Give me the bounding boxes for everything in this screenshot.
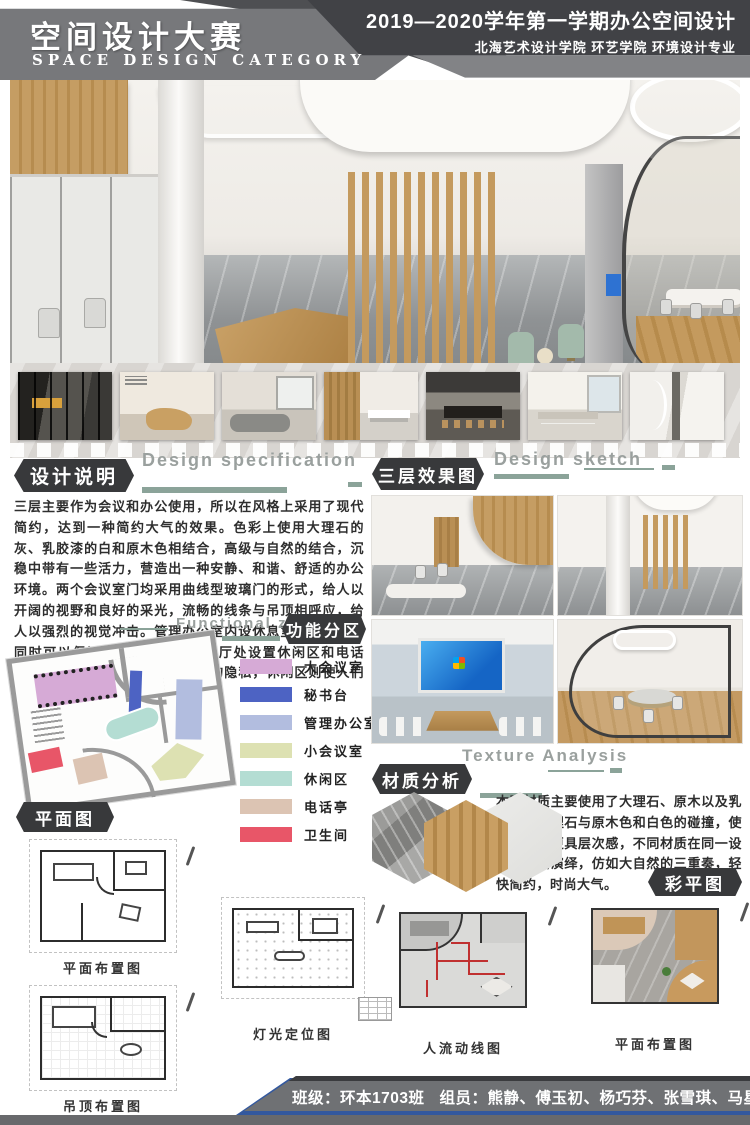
- render-glass-meeting-room: [558, 620, 742, 743]
- legend-swatch: [240, 799, 292, 814]
- floor-plan-drawing: [40, 850, 166, 942]
- legend-label: 大会议室: [304, 657, 364, 676]
- conference-table: [410, 921, 450, 936]
- legend-label: 休闲区: [304, 769, 349, 788]
- lounge-table: [480, 977, 512, 997]
- conference-table: [53, 863, 94, 881]
- legend-item: 秘书台: [240, 686, 370, 702]
- poster-header: 空间设计大赛 SPACE DESIGN CATEGORY 2019—2020学年…: [0, 0, 750, 80]
- wood-floor: [636, 316, 740, 363]
- accent-dash: [662, 465, 675, 470]
- stairs: [30, 705, 64, 743]
- gray-wall-panel: [585, 164, 623, 363]
- north-arrow: [186, 992, 196, 1012]
- ceiling-feature: [52, 1006, 96, 1028]
- school-info: 北海艺术设计学院 环艺学院 环境设计专业: [366, 37, 736, 56]
- chair-row: [379, 717, 426, 735]
- sketch-title-en: Design sketch: [494, 449, 642, 470]
- ceiling-light: [613, 630, 676, 650]
- desk: [125, 861, 147, 875]
- thumbnail-office-4: [324, 372, 418, 440]
- north-arrow: [186, 846, 196, 866]
- wood-slat-partition: [348, 172, 498, 363]
- office-chair: [643, 709, 654, 723]
- circulation-line: [468, 942, 470, 973]
- ceiling-plan-caption: 吊顶布置图: [63, 1096, 143, 1115]
- lighting-plan-block: 灯光定位图: [218, 908, 368, 1043]
- header-course-info: 2019—2020学年第一学期办公空间设计 北海艺术设计学院 环艺学院 环境设计…: [366, 5, 736, 56]
- render-leisure-area: [372, 496, 553, 615]
- blue-accent-panel: [606, 274, 621, 296]
- legend-swatch: [240, 659, 292, 674]
- legend-item: 卫生间: [240, 826, 370, 842]
- thumbnail-office-2: [120, 372, 214, 440]
- windows-logo: [453, 657, 465, 669]
- lounge-chair: [558, 324, 584, 358]
- zone-restroom: [28, 747, 63, 773]
- wood-cabinet: [10, 80, 128, 174]
- zoning-legend: 大会议室 秘书台 管理办公室 小会议室 休闲区 电话亭 卫生间: [240, 658, 370, 854]
- wood-ceiling-volume: [473, 496, 553, 565]
- conference-table: [426, 711, 498, 731]
- color-layout-plan-caption: 平面布置图: [615, 1034, 695, 1053]
- legend-swatch: [240, 827, 292, 842]
- accent-line: [548, 770, 604, 772]
- wood-wall: [434, 517, 459, 567]
- ceiling-oval: [120, 1043, 142, 1056]
- thumbnail-office-6: [528, 372, 622, 440]
- accent-line: [584, 468, 654, 470]
- plan-wall: [110, 1030, 164, 1032]
- lighting-plan-caption: 灯光定位图: [253, 1024, 333, 1043]
- legend-swatch: [240, 687, 292, 702]
- room-zone: [480, 914, 525, 943]
- footer-credits: 班级：环本1703班 组员：熊静、傅玉初、杨巧芬、张雪琪、马星星: [292, 1086, 744, 1108]
- poster-title-en: SPACE DESIGN CATEGORY: [32, 51, 366, 69]
- office-chair: [84, 298, 106, 328]
- plan-wall: [113, 889, 164, 891]
- white-column: [158, 80, 204, 363]
- thumbnail-office-1: [18, 372, 112, 440]
- texture-title-en: Texture Analysis: [462, 746, 628, 766]
- zoning-badge: 功能分区: [282, 614, 366, 644]
- circulation-line: [451, 942, 471, 944]
- plan-wall: [81, 903, 83, 940]
- service-zone: [593, 965, 625, 1002]
- glass-partition-left: [10, 174, 160, 363]
- design-competition-poster: 空间设计大赛 SPACE DESIGN CATEGORY 2019—2020学年…: [0, 0, 750, 1125]
- legend-item: 大会议室: [240, 658, 370, 674]
- round-table: [628, 689, 676, 704]
- legend-item: 电话亭: [240, 798, 370, 814]
- white-platform: [386, 584, 466, 598]
- legend-item: 小会议室: [240, 742, 370, 758]
- office-zone: [675, 910, 717, 960]
- door-swing: [96, 877, 114, 895]
- hero-render: [10, 80, 740, 363]
- circulation-line: [426, 980, 428, 997]
- plans-badge: 平面图: [16, 802, 114, 832]
- thumbnail-office-3: [222, 372, 316, 440]
- legend-label: 小会议室: [304, 741, 364, 760]
- light-fixture-group: [312, 918, 338, 935]
- lounge-table: [119, 903, 142, 922]
- office-chair: [38, 308, 60, 338]
- door-swing: [91, 1022, 107, 1038]
- plan-wall: [110, 998, 112, 1030]
- floor-plan-caption: 平面布置图: [63, 958, 143, 977]
- ceiling-curve: [630, 80, 740, 142]
- accent-bar: [142, 487, 287, 493]
- sketch-badge: 三层效果图: [372, 458, 484, 490]
- wood-slat-partition: [643, 515, 691, 589]
- white-column: [606, 496, 630, 615]
- side-table: [537, 348, 553, 363]
- legend-label: 卫生间: [304, 825, 349, 844]
- plan-wall: [298, 939, 352, 941]
- course-title: 2019—2020学年第一学期办公空间设计: [366, 5, 736, 34]
- plant: [662, 967, 671, 976]
- plan-wall: [298, 910, 300, 939]
- legend-label: 管理办公室: [304, 713, 379, 732]
- office-chair: [722, 299, 734, 315]
- accent-bar: [222, 636, 280, 641]
- light-fixture-group: [246, 921, 279, 933]
- accent-bar: [494, 474, 569, 479]
- circulation-line: [436, 960, 488, 962]
- light-fixture-group: [274, 951, 305, 961]
- floor-plan-block: 平面布置图: [28, 850, 178, 977]
- ceiling-plan-block: 吊顶布置图: [28, 996, 178, 1115]
- legend-swatch: [240, 715, 292, 730]
- office-chair: [672, 696, 683, 710]
- legend-swatch: [240, 743, 292, 758]
- class-label: 班级：环本1703班: [292, 1086, 424, 1108]
- accent-line: [120, 628, 168, 630]
- footer-bottom-strip: [0, 1115, 750, 1125]
- texture-badge: 材质分析: [372, 764, 472, 794]
- zoning-floor-plan: [6, 630, 236, 814]
- legend-label: 秘书台: [304, 685, 349, 704]
- zone-management-office: [175, 679, 202, 739]
- legend-swatch: [240, 771, 292, 786]
- design-spec-badge: 设计说明: [14, 459, 134, 492]
- legend-label: 电话亭: [304, 797, 349, 816]
- design-spec-title-en: Design specification: [142, 450, 357, 471]
- lounge-chair: [508, 332, 534, 363]
- north-arrow: [376, 904, 386, 924]
- zone-conference-large: [34, 664, 118, 709]
- accent-dash: [610, 768, 622, 773]
- lighting-plan-drawing: [232, 908, 354, 988]
- office-chair: [613, 696, 624, 710]
- zone-conference-small: [147, 737, 209, 786]
- ceiling-panel: [632, 496, 720, 510]
- accent-dash: [348, 482, 362, 487]
- wood-conference-table: [603, 917, 645, 934]
- legend-item: 休闲区: [240, 770, 370, 786]
- circulation-plan-caption: 人流动线图: [423, 1038, 503, 1057]
- render-conference-room: [372, 620, 553, 743]
- thumbnail-office-5: [426, 372, 520, 440]
- north-arrow: [548, 906, 558, 926]
- legend-item: 管理办公室: [240, 714, 370, 730]
- north-arrow: [740, 902, 750, 922]
- render-lobby-partition: [558, 496, 742, 615]
- ceiling-plan-drawing: [40, 996, 166, 1080]
- curved-glass-meeting-room: [622, 136, 740, 363]
- lounge-chair: [415, 565, 426, 579]
- ceiling-panel: [300, 80, 630, 152]
- color-plan-badge: 彩平图: [648, 868, 742, 896]
- thumbnail-office-7: [630, 372, 724, 440]
- color-layout-plan-block: 平面布置图: [582, 908, 728, 1053]
- members-label: 组员：熊静、傅玉初、杨巧芬、张雪琪、马星星: [439, 1086, 750, 1108]
- lounge-chair: [437, 563, 448, 577]
- circulation-plan-drawing: [399, 912, 527, 1008]
- chair-row: [499, 717, 546, 735]
- circulation-plan-block: 人流动线图: [390, 912, 536, 1057]
- office-chair: [660, 299, 672, 315]
- lighting-schedule-table: [358, 997, 392, 1021]
- office-chair: [690, 303, 702, 319]
- circulation-line: [468, 973, 505, 975]
- film-strip: [10, 363, 740, 458]
- color-layout-plan-drawing: [591, 908, 719, 1004]
